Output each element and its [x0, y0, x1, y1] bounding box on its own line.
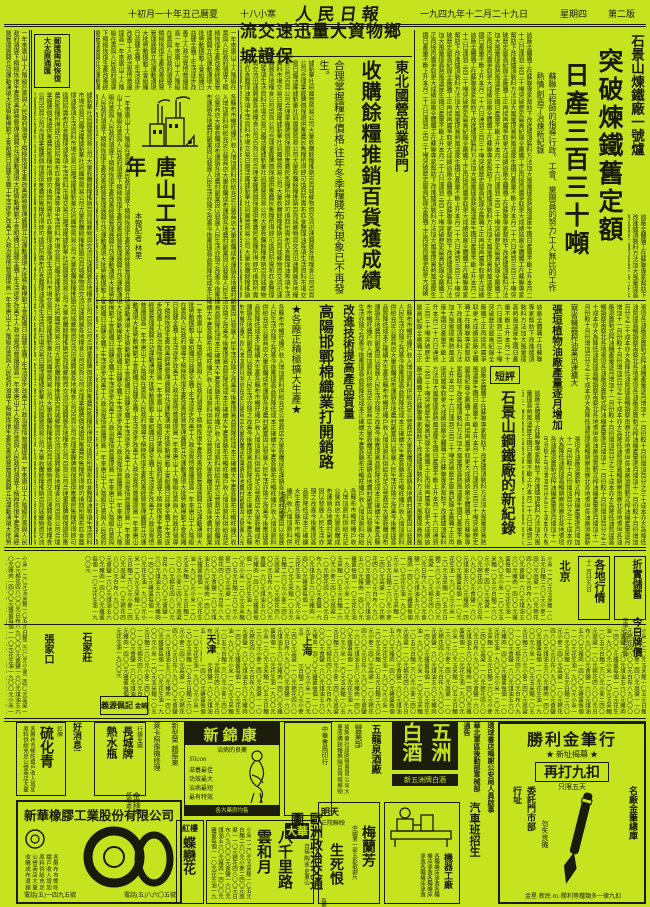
pen-shop-tag: ★ 新址揭幕 ★ — [503, 749, 641, 760]
opera-film: 生死恨 — [327, 843, 345, 901]
section-divider — [96, 300, 646, 301]
medicine-bullet-2: 功效最大 — [189, 776, 213, 785]
gold-shop-ad: 義源佩記 金鋪 — [100, 696, 148, 715]
honglou-name: 紅樓 — [179, 823, 201, 834]
gold-shop-name: 義源佩記 — [101, 700, 133, 711]
issue-date: 一九四九年十二月二十九日 — [420, 7, 556, 20]
gaoyang-kicker: 改進技術提高產品質量 — [338, 304, 356, 454]
medicine-bullet-3: 治病最短 — [189, 785, 213, 794]
book-title: 歐洲政治交通圖 — [287, 812, 325, 898]
lathe-icon — [387, 805, 457, 849]
market-city-beijing: 北京 — [556, 560, 572, 590]
book-price: 每部四十八元 — [319, 898, 326, 907]
sulfide-name: 硫化青 — [35, 726, 55, 792]
editorial-label-box: 短評 — [490, 366, 520, 384]
medicine-footer: 各大藥房均售 — [185, 805, 279, 815]
lunar-date: 十初月一十年丑己曆夏 — [128, 7, 228, 20]
lead-body: 該廠全體職工在蘇聯專家幫助下改進爐頂裝料方法加大風量提高熱風溫度生鐵日產量不斷上… — [416, 32, 532, 298]
book-publisher: 中華書局印行 — [318, 726, 328, 812]
woman-figure-icon — [237, 749, 275, 805]
northeast-kicker: 東北國營商業部門 — [386, 60, 410, 216]
gaoyang-body-right: 各縣布市暢旺織戶收入增加原料供給充足公營商店大量收購成布運銷各地農村副業因以發展… — [358, 304, 412, 545]
market-mid-rule — [4, 624, 646, 625]
honglou-film: 蝶戀花 — [182, 836, 198, 888]
quotes-date: 十二月廿九日 — [584, 559, 591, 617]
lead-headline-1: 突破煉鐵舊定額 — [594, 48, 626, 248]
wine-label: 新五洲牌白酒 — [392, 774, 458, 786]
pen-shop-ad: 勝利金筆行 ★ 新址揭幕 ★ 再打九扣 只限五天 名廠金筆總庫 行址 委託門市部… — [498, 722, 646, 904]
dahua-details: 小米一二〇元玉米麵一〇五元白麵二六〇元小麥二四〇元高粱一一〇元棉花四八〇〇元白布… — [211, 827, 251, 899]
leica-repair-ad: 萊卡照像機修理 — [150, 722, 162, 796]
medicine-latin: Slicon — [189, 755, 207, 763]
machine-shop-note: 各種機床承造各種機床承造各種機床承造各種機床承造 — [389, 853, 439, 901]
pen-shop-hurry: 勿失良機 — [540, 820, 550, 886]
lead-deck: 蘇聯工程師的指導,行政、工會、黨團員的努力,工人無比的工作熱情,創造了冶煉新紀錄 — [534, 72, 558, 296]
savings-rate-box: 折實儲蓄 今日牌價 中國人民銀行掛牌 — [614, 556, 646, 620]
rubber-phone-1: 電話(五)一四九五號 — [24, 890, 76, 899]
bus-class-ad: 汽車班招生 — [466, 802, 482, 902]
northeast-deck: 合理掌握糧布價格,往年冬季糧賤布貴現象已不再發生。 — [316, 60, 346, 298]
market-top-rule — [4, 547, 646, 551]
good-news-column: 好消息! — [70, 722, 84, 792]
tangshan-body-bottom: 一年來唐山工人階級在黨與人民政府領導下積極恢復生產改善經營管理展開立功運動湧現大… — [132, 302, 202, 545]
tangshan-byline: 本報記者 林里 — [132, 212, 144, 298]
chahar-kicker: 察省機器榨油業迅速擴大 — [566, 304, 580, 408]
wine-brand: 五洲白酒 — [392, 722, 458, 770]
tire-icon — [76, 826, 176, 888]
book-ad: 中華書局印行 歐洲政治交通圖 每部四十八元 — [284, 722, 332, 816]
factory-illustration — [136, 94, 202, 152]
lead-body-tail: 該廠全體職工在蘇聯專家幫助下改進爐頂裝料方法加大風量提高熱風溫度生鐵日產量不斷上… — [628, 214, 646, 298]
lead-headline-2: 日產三百三十噸 — [560, 62, 592, 262]
pen-shop-branch: 委託門市部 — [526, 786, 538, 890]
pen-shop-note: 金星·新民·81·勝利等種類多一律九扣 — [504, 890, 642, 900]
opera-note: 中國第一部五彩歌劇片 — [349, 825, 357, 901]
northeast-body: 據新華社訊國營貿易公司大量收購餘糧推銷百貨城鄉物資交流迅速開展各地糧食公司百貨公… — [240, 60, 314, 298]
gaoyang-headline: 高陽邯鄲棉織業打開銷路 — [304, 304, 336, 484]
thermos-ad: 行銷全國 長城牌 熱水瓶 金錢牌 經理處 — [94, 722, 146, 796]
machine-shop-name: 機器工廠 — [441, 853, 455, 901]
postal-notice-box: 郵匯兩局恢復大太原通匯 — [34, 34, 70, 88]
rubber-company-name: 新華橡膠工業股份有限公司 — [21, 805, 177, 823]
chahar-headline: 張垣植物油廠產量逐月增加 — [544, 304, 564, 432]
quotes-title-box: 各地行情 十二月廿九日 — [578, 556, 610, 620]
northeast-headline: 收購餘糧推銷百貨獲成績 — [348, 60, 384, 298]
tangshan-title: 唐山工運一年 — [146, 156, 180, 292]
rubber-phone-2: 電話(五)八六〇五號 — [124, 890, 176, 899]
pen-shop-addr: 行址 — [512, 786, 524, 866]
opera-ad: 明天 三院聯映 梅蘭芳 中國第一部五彩歌劇片 生死恨 — [318, 802, 380, 904]
sulfide-brand: 紅牌 — [55, 726, 62, 792]
rubber-company-ad: 新華橡膠工業股份有限公司 各縣布市暢旺織戶收入增加原料供給充足公營商店大量收購成… — [16, 800, 182, 904]
wine-ad: 五洲白酒 新五洲牌白酒 五龍泉酒廠 營業部 據新華社訊國營貿易公司大量收購餘糧推… — [336, 722, 460, 798]
edge-rule — [29, 30, 32, 545]
lead-kicker: 石景山煉鐵廠一號爐 — [628, 34, 646, 206]
market-city-zhangjiakou: 張家口 — [40, 634, 55, 674]
market-edge-column: 小米一二〇元玉米麵一〇五元白麵二六〇元小麥二四〇元高粱一一〇元棉花四八〇〇元白布… — [6, 556, 27, 714]
market-city-shijiazhuang: 石家莊 — [78, 632, 93, 672]
rubber-ad-text: 各縣布市暢旺織戶收入增加原料供給充足公營商店大量收購成布運銷各地農村副業因以發展… — [24, 854, 58, 890]
medicine-brand: 新錦康 — [185, 723, 279, 745]
chahar-body-under: 張垣各油廠添置新式榨油機產量逐月增加十一月份較十月份增加百分之三十成本亦大為降低… — [544, 436, 580, 545]
trademark-icon — [24, 828, 46, 850]
market-city-shanghai: 上海 — [298, 636, 313, 664]
banner-headline-rule — [240, 56, 412, 57]
gaoyang-body-bottom: 各縣布市暢旺織戶收入增加原料供給充足公營商店大量收購成布運銷各地農村副業因以發展… — [286, 488, 356, 545]
page-number: 第二版 — [608, 7, 642, 20]
tangshan-intro-text: 一年來唐山工人階級在黨與人民政府領導下積極恢復生產改善經營管理展開立功運動湧現大… — [96, 30, 236, 90]
column-rule-2 — [238, 30, 239, 545]
wine-maker: 五龍泉酒廠 — [366, 724, 382, 790]
machine-shop-ad: 機器工廠 各種機床承造各種機床承造各種機床承造各種機床承造 — [384, 802, 460, 904]
edge-column-text: 一年來唐山工人階級在黨與人民政府領導下積極恢復生產改善經營管理展開立功運動湧現大… — [6, 30, 27, 545]
gold-shop-sub: 金鋪 — [135, 701, 147, 710]
fountain-pen-icon — [556, 784, 600, 888]
savings-line-1: 折實儲蓄 — [628, 559, 643, 617]
gaoyang-deck: ★各廠正積極擴大生產★ — [286, 304, 302, 464]
thermos-line1: 行銷全國 — [135, 726, 142, 792]
editorial-body-left: 該廠全體職工在蘇聯專家幫助下改進爐頂裝料方法加大風量提高熱風溫度生鐵日產量不斷上… — [416, 366, 486, 545]
thermos-line2: 長城牌 — [119, 726, 135, 792]
tangshan-body-left: 一年來唐山工人階級在黨與人民政府領導下積極恢復生產改善經營管理展開立功運動湧現大… — [96, 94, 130, 545]
left-column-text: 據新華社訊國營貿易公司大量收購餘糧推銷百貨城鄉物資交流迅速開展各地糧食公司百貨公… — [34, 92, 92, 545]
editorial-title: 石景山鋼鐵廠的新紀錄 — [494, 390, 518, 545]
medicine-ad: 新錦康 治病的良藥 Slicon 滋養最佳 功效最大 治病最短 最有特效 各大藥… — [184, 722, 280, 816]
quotes-title: 各地行情 — [591, 559, 607, 617]
column-rule-3 — [414, 30, 415, 545]
medicine-bullet-1: 滋養最佳 — [189, 767, 213, 776]
newspaper-page: 十初月一十年丑己曆夏 十八小寒 人民日報 一九四九年十二月二十九日 星期四 第二… — [0, 0, 650, 907]
editorial-lede: 該廠全體職工在蘇聯專家幫助下改進爐頂裝料方法加大風量提高熱風溫度生鐵日產量不斷上… — [416, 304, 542, 362]
wine-dept: 營業部 — [352, 724, 364, 774]
opera-star: 梅蘭芳 — [359, 825, 377, 885]
gaoyang-signature: (河北分社) — [278, 492, 286, 544]
sulfide-ad: 紅牌 硫化青 各縣布市暢旺織戶收入增加原料供給充足公營商店大量收購成布運銷各地農… — [16, 722, 66, 796]
thermos-line3: 熱水瓶 — [103, 726, 119, 792]
pen-shop-promo: 再打九扣 — [535, 762, 609, 782]
chahar-body-right: 張垣各油廠添置新式榨油機產量逐月增加十一月份較十月份增加百分之三十成本亦大為降低… — [584, 304, 646, 545]
column-rule-1 — [94, 30, 95, 545]
pen-shop-stock: 名廠金筆總庫 — [626, 786, 640, 898]
bookstore-thanks-notice: 環球書店鳴謝公安局人員啟事 — [484, 722, 496, 902]
editorial-body-right: 該廠全體職工在蘇聯專家幫助下改進爐頂裝料方法加大風量提高熱風溫度生鐵日產量不斷上… — [522, 390, 540, 545]
sulfide-text: 各縣布市暢旺織戶收入增加原料供給充足公營商店大量收購成布運銷各地農村副業因以發展… — [23, 726, 35, 792]
tangshan-body-right: 各縣布市暢旺織戶收入增加原料供給充足公營商店大量收購成布運銷各地農村副業因以發展… — [204, 94, 236, 545]
market-city-tianjin: 天津 — [202, 634, 217, 662]
market-upper-table: 小米一二〇元玉米麵一〇五元白麵二六〇元小麥二四〇元高粱一一〇元棉花四八〇〇元白布… — [32, 556, 552, 620]
wine-smalltext: 據新華社訊國營貿易公司大量收購餘糧推銷百貨城鄉物資交流迅速開展各地糧食公司百貨公… — [336, 724, 349, 794]
weekday: 星期四 — [560, 7, 590, 20]
ordnance-notice: 華北軍區後勤部軍械部通告 — [470, 722, 482, 798]
zhao-notice-ad: 新型榮 趙振東 — [164, 722, 180, 796]
exchange-banner-headline: 流交速迅量大資物鄉城證保 — [240, 30, 412, 54]
pen-shop-name: 勝利金筆行 — [503, 727, 641, 749]
medicine-bullet-4: 最有特效 — [189, 794, 213, 803]
